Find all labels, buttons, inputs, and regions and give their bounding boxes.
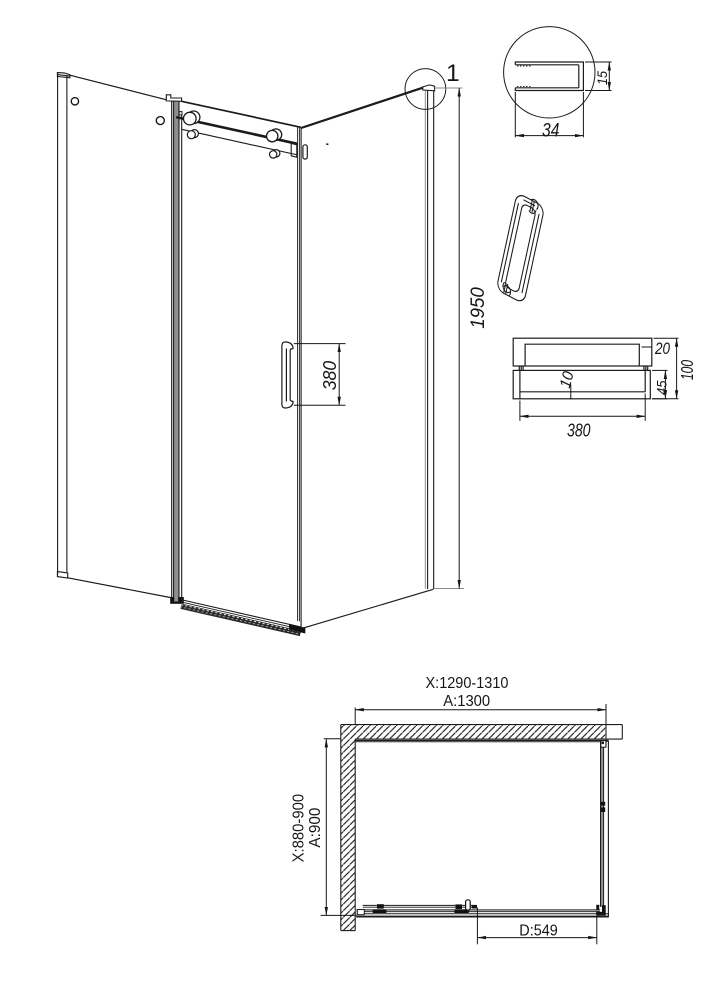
svg-text:380: 380 xyxy=(320,361,340,391)
svg-text:15: 15 xyxy=(595,71,610,85)
svg-text:D:549: D:549 xyxy=(519,922,558,939)
svg-text:A:1300: A:1300 xyxy=(443,693,490,710)
svg-text:A:900: A:900 xyxy=(307,807,324,847)
svg-text:34: 34 xyxy=(542,119,560,141)
svg-text:100: 100 xyxy=(677,360,697,380)
svg-text:45: 45 xyxy=(654,380,669,395)
svg-text:X:1290-1310: X:1290-1310 xyxy=(426,675,509,692)
svg-text:1950: 1950 xyxy=(467,287,489,329)
svg-text:20: 20 xyxy=(654,339,670,358)
svg-text:1: 1 xyxy=(446,60,460,87)
svg-text:380: 380 xyxy=(567,421,591,441)
svg-text:X:880-900: X:880-900 xyxy=(291,794,308,863)
